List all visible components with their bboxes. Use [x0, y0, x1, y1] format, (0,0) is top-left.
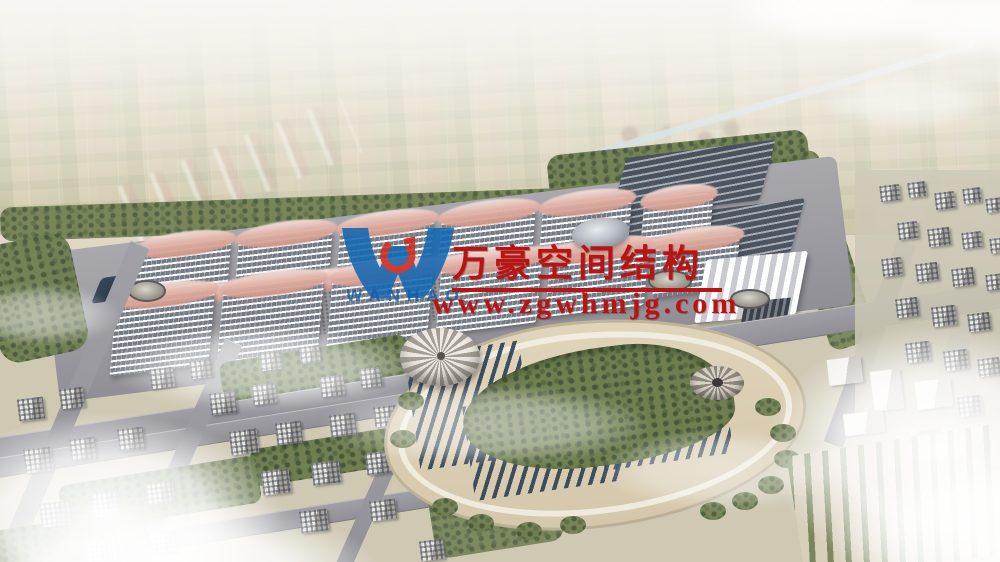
tree-cluster — [516, 522, 542, 540]
company-name-watermark: 万豪空间结构 — [452, 246, 722, 292]
tree-cluster — [432, 498, 458, 516]
aerial-rendering-scene: WANHAO 万豪空间结构 www.zgwhmjg.com — [0, 0, 1000, 562]
cloud-wisp — [820, 75, 990, 130]
tree-cluster — [468, 514, 494, 532]
website-watermark: www.zgwhmjg.com — [432, 287, 740, 321]
cloud-wisp — [320, 385, 650, 465]
tree-cluster — [560, 516, 586, 534]
